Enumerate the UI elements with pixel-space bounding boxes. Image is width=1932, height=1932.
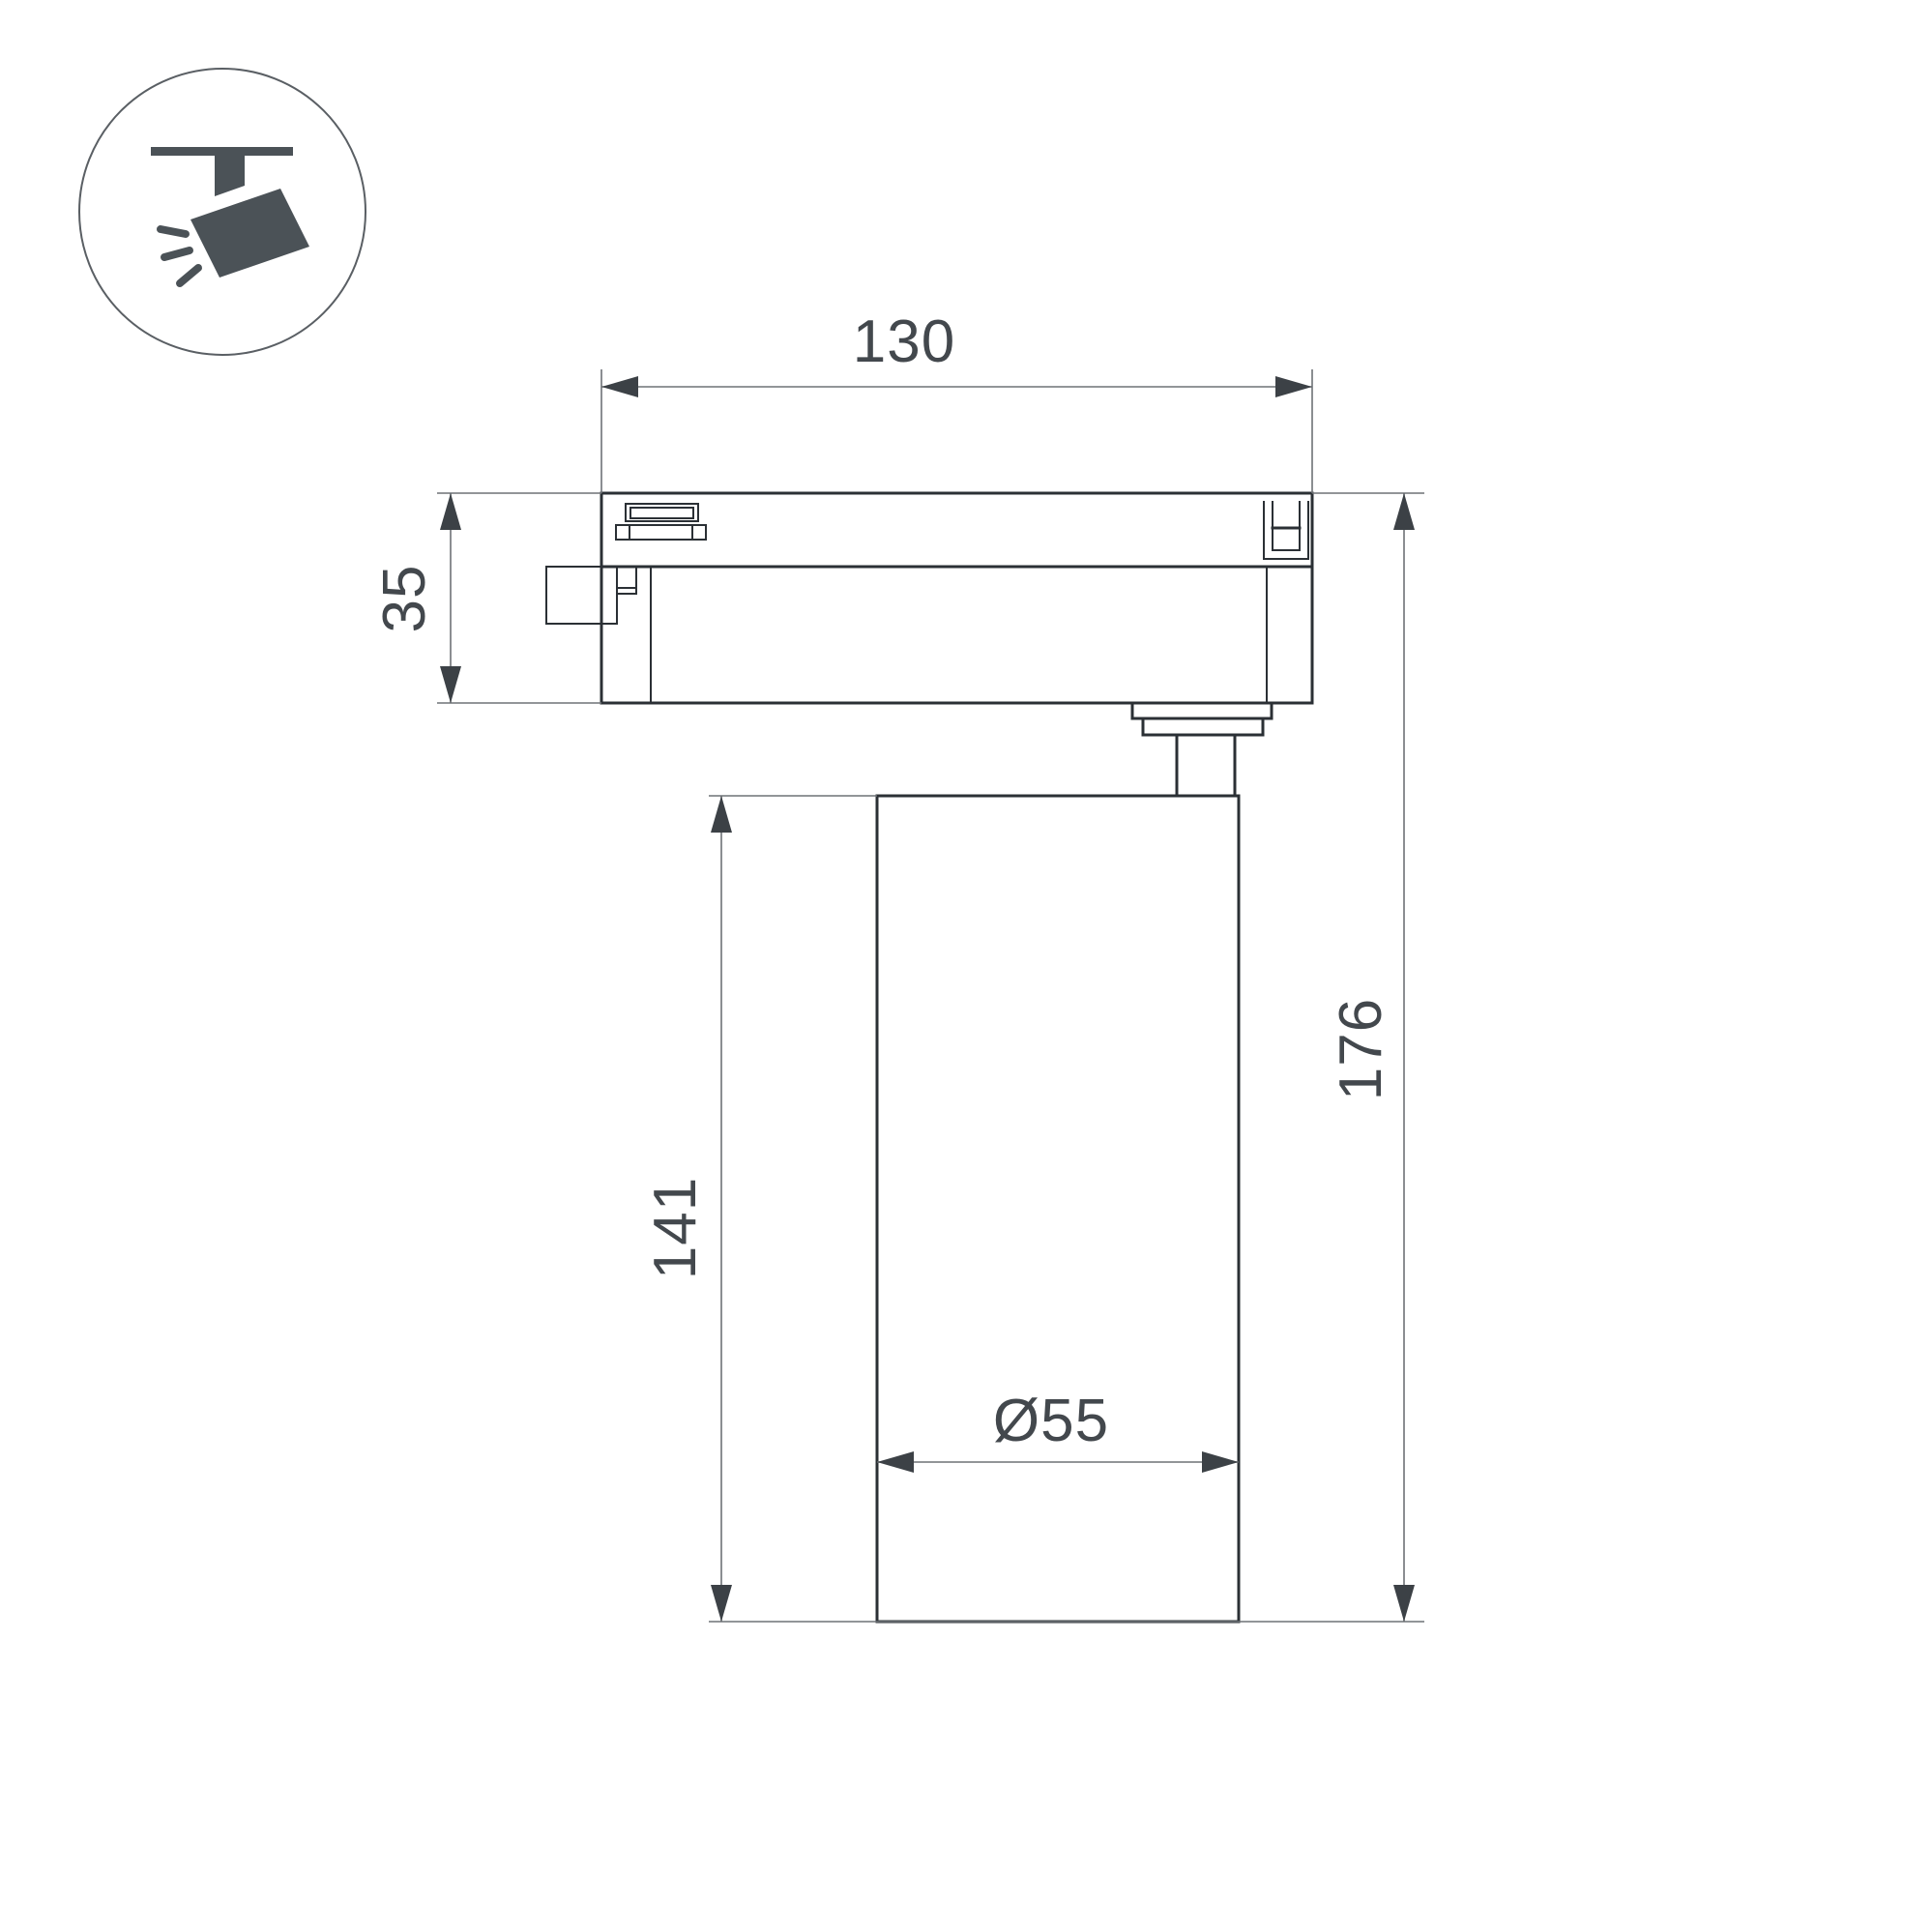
release-latch (546, 567, 617, 624)
arrowhead (1393, 493, 1415, 530)
arrowhead (711, 1585, 732, 1622)
pivot-neck (1177, 735, 1235, 796)
arrowhead (601, 376, 638, 397)
dimension-lines (451, 387, 1404, 1622)
arrowhead (440, 493, 461, 530)
extension-lines (437, 369, 1424, 1622)
arrowhead (1275, 376, 1312, 397)
track-adapter-housing (601, 567, 1312, 703)
pivot-step-1 (1132, 703, 1272, 718)
dimension-arrows (440, 376, 1415, 1622)
arrowhead (1393, 1585, 1415, 1622)
arrowhead (711, 796, 732, 833)
end-clip-inner (1273, 501, 1300, 550)
dim-55-label: Ø55 (993, 1388, 1109, 1454)
drawing-page: 130 35 141 176 Ø55 (0, 0, 1932, 1932)
dim-176-label: 176 (1328, 998, 1394, 1100)
icon-track-bar (151, 147, 293, 156)
dim-35-label: 35 (371, 565, 438, 633)
dimension-labels: 130 35 141 176 Ø55 (371, 308, 1394, 1454)
latch-hook (617, 567, 636, 588)
pivot-step-2 (1143, 718, 1263, 735)
arrowhead (877, 1451, 914, 1473)
latch-hook-foot (617, 588, 636, 594)
contact-clip-upper-inner (630, 508, 693, 518)
arrowhead (440, 666, 461, 703)
dim-141-label: 141 (642, 1177, 709, 1279)
fixture-outline (546, 493, 1312, 1622)
technical-drawing: 130 35 141 176 Ø55 (0, 0, 1932, 1932)
track-adapter-top (601, 493, 1312, 567)
icon-light-ray (161, 229, 186, 234)
arrowhead (1202, 1451, 1239, 1473)
dim-130-label: 130 (853, 308, 955, 375)
track-spotlight-icon (79, 69, 366, 355)
lamp-body (877, 796, 1239, 1622)
